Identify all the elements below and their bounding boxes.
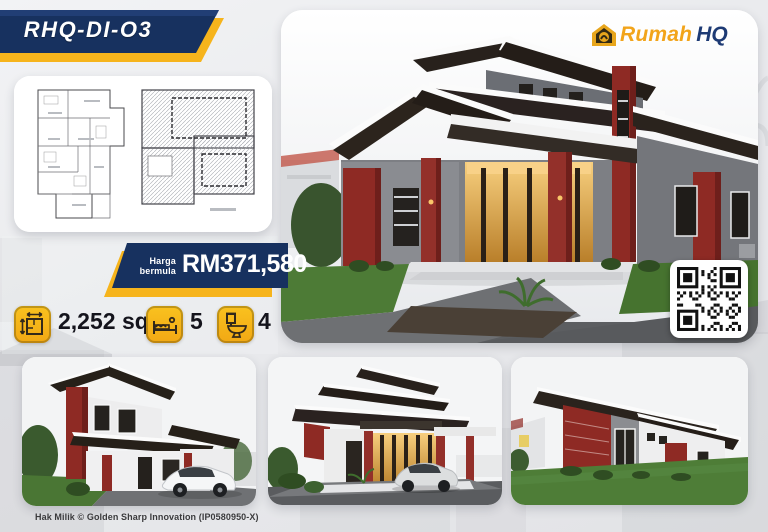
rumahhq-logo: Rumah HQ	[591, 20, 728, 50]
floor-area-icon	[19, 311, 46, 338]
spec-area-value: 2,252 sqf	[58, 308, 156, 335]
thumbnail-house-front-view	[268, 357, 502, 505]
footer-copyright: Hak Milik © Golden Sharp Innovation (IP0…	[35, 512, 259, 522]
price-prefix: Harga bermula	[122, 256, 176, 276]
logo-text-rumah: Rumah	[620, 23, 692, 47]
price-banner: Harga bermula RM371,580	[98, 241, 288, 301]
qr-code	[670, 260, 748, 338]
spec-bed-value: 5	[190, 308, 203, 335]
spec-bed-tile	[146, 306, 183, 343]
model-banner: RHQ-DI-O3	[0, 0, 232, 66]
thumbnail-house-angle-view	[22, 357, 256, 506]
logo-text-hq: HQ	[696, 23, 728, 47]
roofplan-right	[142, 90, 254, 211]
spec-area-tile	[14, 306, 51, 343]
rumahhq-house-icon	[591, 23, 617, 47]
thumbnail-card-side-view	[511, 357, 748, 505]
thumbnail-house-side-view	[511, 357, 748, 505]
floorplan-drawings	[14, 76, 272, 232]
model-banner-label: RHQ-DI-O3	[12, 17, 164, 43]
toilet-icon	[222, 311, 250, 339]
thumbnail-card-front-view	[268, 357, 502, 505]
thumbnail-card-angle-view	[22, 357, 256, 506]
price-value: RM371,580	[182, 250, 307, 279]
spec-bath-tile	[217, 306, 254, 343]
flyer-page: Rumah HQ RHQ-DI-O3	[0, 0, 768, 532]
bed-icon	[151, 311, 179, 339]
spec-bath-value: 4	[258, 308, 271, 335]
floorplan-card	[14, 76, 272, 232]
qr-pattern	[677, 267, 741, 331]
